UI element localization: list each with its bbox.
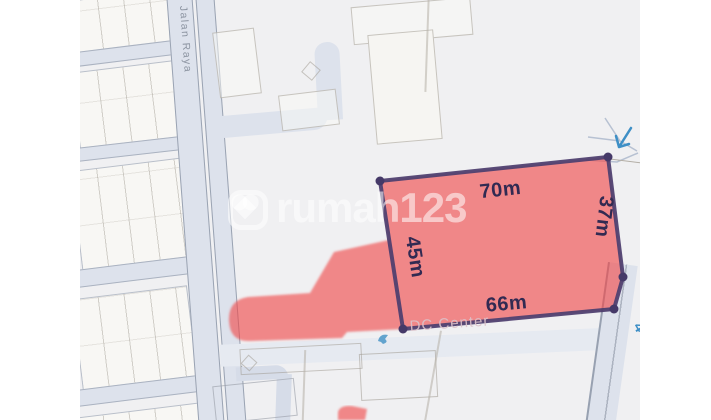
map-overlay: DC Center Jalan Raya 4 70m 37m 45m 66m (80, 0, 640, 420)
plot-vertex[interactable] (610, 305, 619, 314)
map-canvas[interactable]: DC Center Jalan Raya 4 70m 37m 45m 66m (80, 0, 640, 420)
poi-marker-icon (378, 335, 388, 344)
plot-vertex[interactable] (619, 273, 628, 282)
plot-vertex[interactable] (604, 153, 613, 162)
highlighted-area-fragment (338, 406, 367, 420)
street-name-label: Jalan Raya (177, 5, 194, 73)
road-number-label: 4 (630, 320, 640, 336)
map-screenshot: DC Center Jalan Raya 4 70m 37m 45m 66m r… (0, 0, 711, 420)
dimension-label-bottom: 66m (485, 291, 528, 317)
dimension-label-top: 70m (479, 177, 523, 203)
plot-vertex[interactable] (376, 177, 385, 186)
plot-vertex[interactable] (399, 325, 408, 334)
